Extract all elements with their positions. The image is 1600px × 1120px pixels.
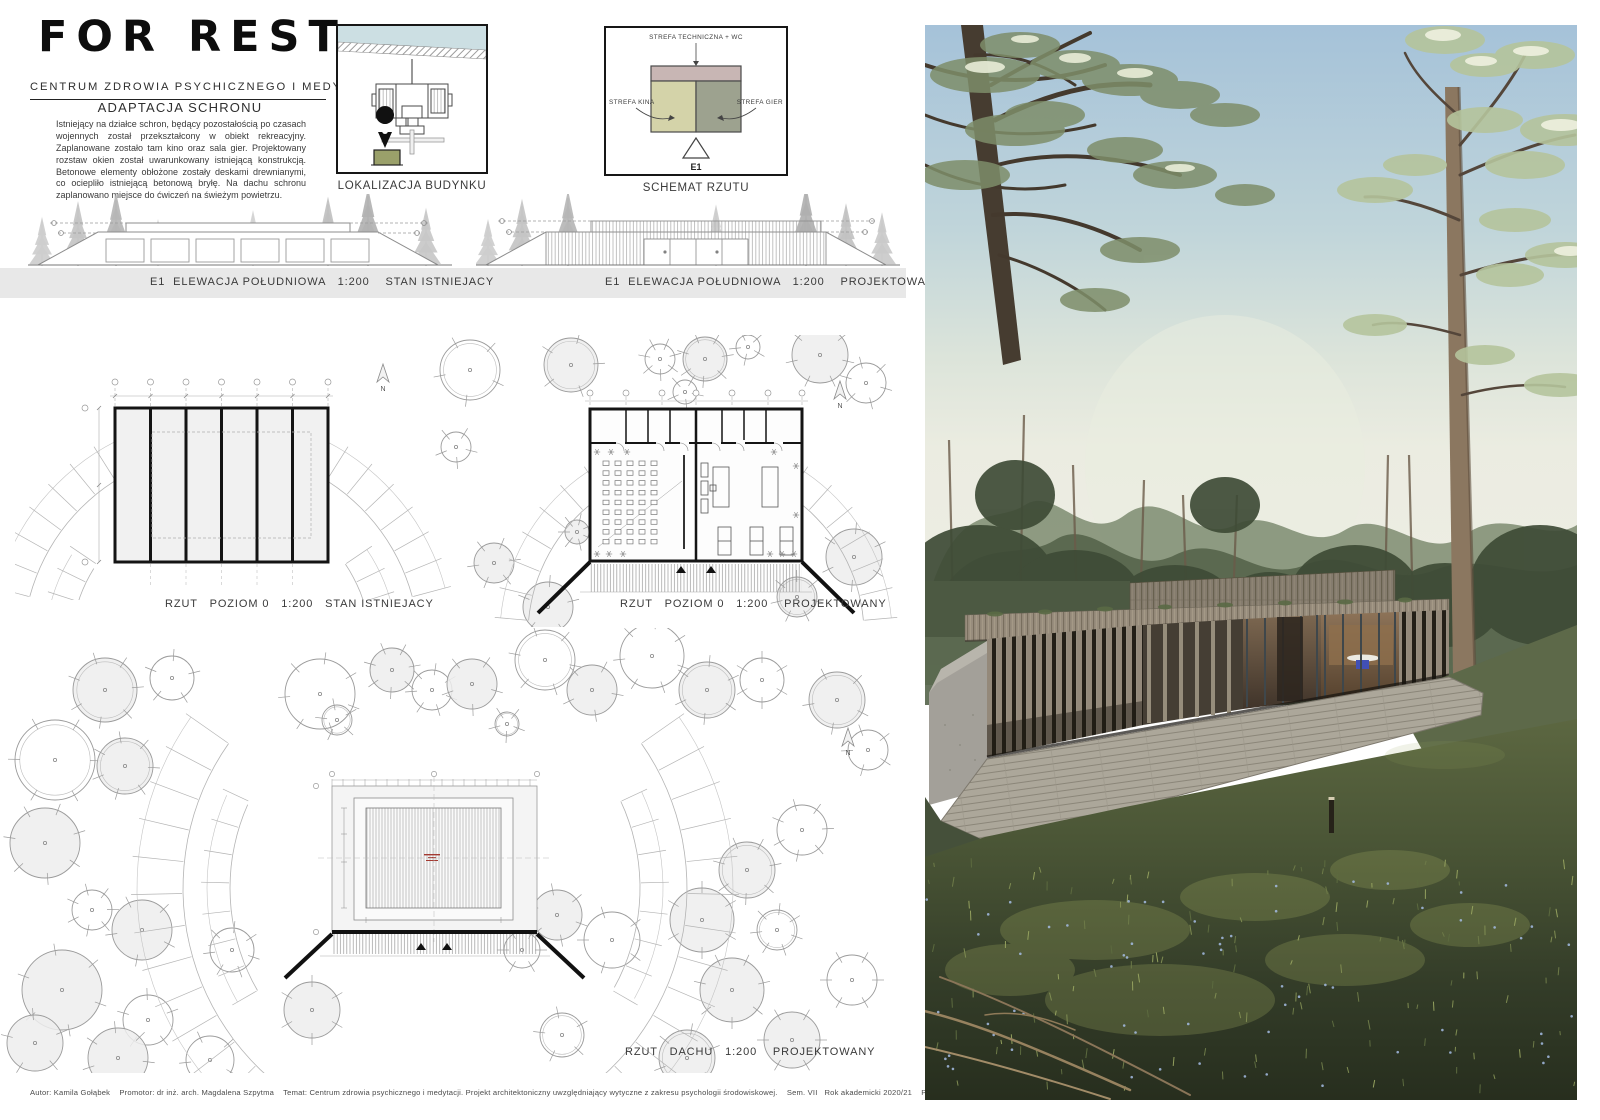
logo-subtitle: CENTRUM ZDROWIA PSYCHICZNEGO I MEDYTACJI [30,81,326,93]
presentation-board: FOR REST CENTRUM ZDROWIA PSYCHICZNEGO I … [0,0,1600,1120]
plan-designed-label: RZUT POZIOM 0 1:200 PROJEKTOWANY [620,598,870,610]
zone-games-label: STREFA GIER [737,99,783,106]
elevation-designed-drawing [476,194,900,270]
zone-technical [651,66,741,81]
svg-text:N: N [845,750,850,757]
bollard-light [1329,797,1334,833]
elevation-designed-label: E1 ELEWACJA POŁUDNIOWA 1:200 PROJEKTOWAN… [605,276,865,288]
schema-caption: SCHEMAT RZUTU [604,182,788,194]
elevation-existing-drawing [28,194,452,270]
elevation-marker-triangle [683,138,709,158]
north-arrow: N [834,381,846,410]
zone-technical-label: STREFA TECHNICZNA + WC [649,34,743,41]
north-arrow: N [377,364,389,393]
deck-hatch [332,934,537,954]
zone-games [696,81,741,132]
roof-plan-drawing: N [0,628,900,1073]
deck-hatch [590,564,802,592]
dimension-grid [585,390,808,407]
render-photo [925,25,1577,1100]
zone-cinema-label: STREFA KINA [609,99,655,106]
north-arrow: N [842,728,854,757]
location-caption: LOKALIZACJA BUDYNKU [326,180,498,192]
logo: FOR REST CENTRUM ZDROWIA PSYCHICZNEGO I … [30,16,326,100]
logo-title: FOR REST [38,16,347,59]
plan-existing-drawing: N [15,348,465,600]
plan-designed-drawing: N [430,335,900,627]
intro-heading: ADAPTACJA SCHRONU [52,100,308,115]
location-diagram [336,24,488,174]
schema-diagram: STREFA TECHNICZNA + WC STREFA KINA STREF… [604,26,788,176]
schema-elevation-marker: E1 [690,162,701,172]
plan-existing-label: RZUT POZIOM 0 1:200 STAN ISTNIEJACY [165,598,415,610]
footer-credits: Autor: Kamila Gołąbek Promotor: dr inż. … [30,1088,900,1097]
column-stubs [151,564,293,588]
zone-cinema [651,81,696,132]
roof-plan-label: RZUT DACHU 1:200 PROJEKTOWANY [625,1046,875,1058]
svg-text:N: N [380,386,385,393]
elevation-existing-label: E1 ELEWACJA POŁUDNIOWA 1:200 STAN ISTNIE… [150,276,400,288]
svg-text:N: N [837,403,842,410]
intro-body: Istniejący na działce schron, będący poz… [56,119,306,202]
